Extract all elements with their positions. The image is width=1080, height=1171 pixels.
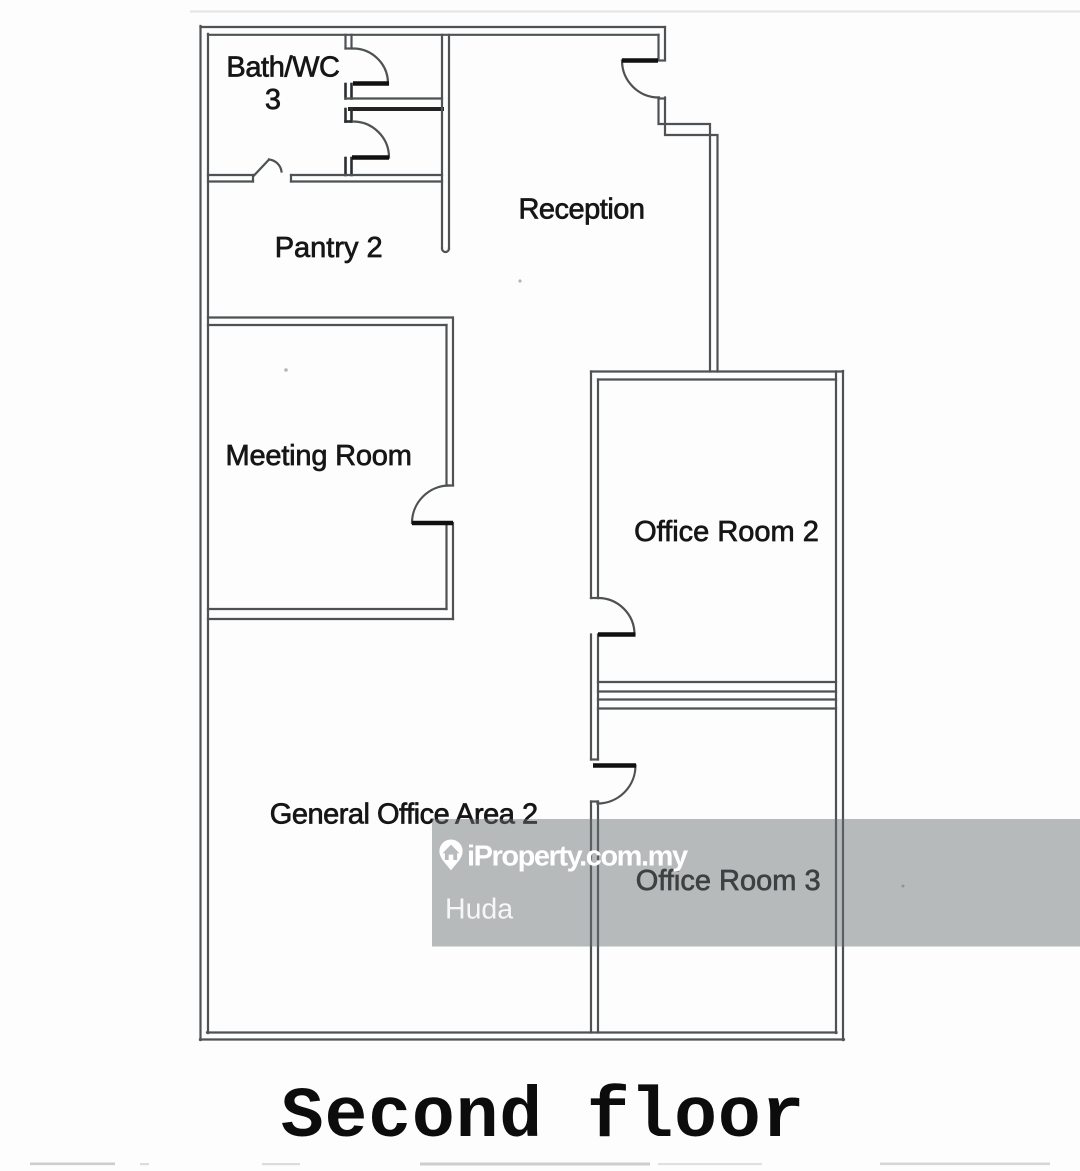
svg-text:Pantry 2: Pantry 2	[275, 232, 383, 264]
svg-text:Bath/WC: Bath/WC	[226, 51, 339, 83]
svg-text:Office Room 2: Office Room 2	[634, 516, 819, 548]
svg-text:Reception: Reception	[518, 194, 644, 226]
svg-text:Huda: Huda	[445, 894, 513, 926]
svg-text:3: 3	[265, 84, 281, 116]
svg-text:iProperty.com.my: iProperty.com.my	[467, 841, 688, 873]
svg-text:Second floor: Second floor	[281, 1077, 805, 1158]
svg-text:Meeting Room: Meeting Room	[226, 440, 412, 472]
